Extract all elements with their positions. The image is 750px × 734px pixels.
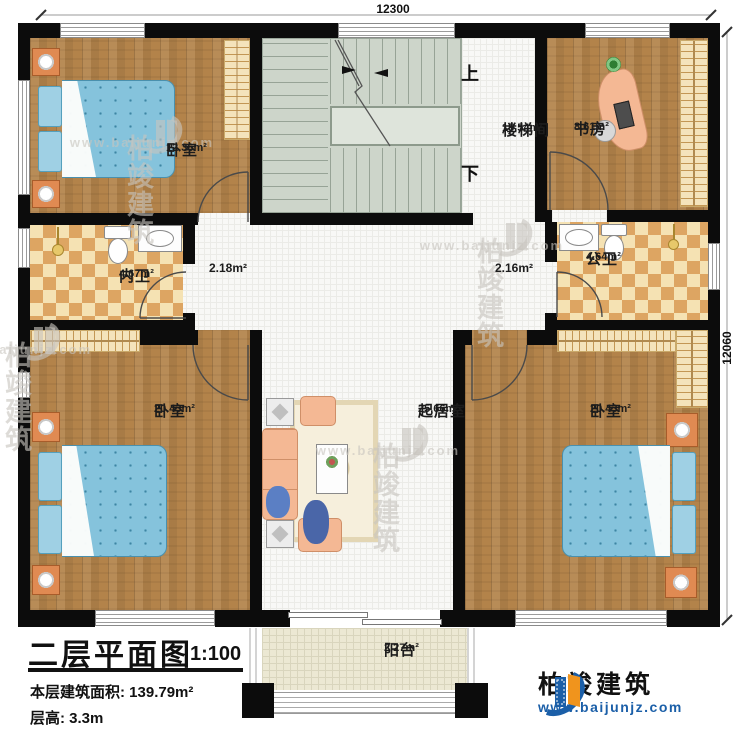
window [585,23,670,38]
sliding-door-panel [288,612,368,618]
closet-bedroom-tl [224,40,250,140]
area-label-hall-right: 2.16m² [495,261,533,275]
brand-logo-icon [538,665,588,721]
window [708,243,720,290]
stair-down-label: 下 [461,160,479,186]
window [95,610,215,626]
wall-segment [18,320,195,330]
pillow [672,452,696,501]
nightstand [665,567,697,598]
pillow [38,505,62,554]
wall-segment [545,320,720,330]
dimension-top: 12300 [376,2,409,16]
floor-plan: 12300 12060 上 下 卧室 12.36m² 楼梯间 15.54m² 书… [0,0,750,734]
nightstand [32,565,60,595]
wall-segment [545,222,557,262]
window [338,23,455,38]
window [18,372,30,398]
pillow [672,505,696,554]
window [18,228,30,268]
wall-segment [535,210,552,222]
shower-hose [57,227,59,245]
nightstand [32,412,60,442]
stair-flight-down [330,148,462,213]
balcony-column [242,683,274,718]
wall-segment [18,610,95,627]
shower-head [668,239,679,250]
area-label-hall-left: 2.18m² [209,261,247,275]
armchair [300,396,336,426]
wall-segment [527,330,557,345]
wall-segment [215,610,290,627]
window [60,23,145,38]
dimension-right: 12060 [720,331,734,364]
balcony-railing [272,692,457,714]
table-flowers [325,455,339,469]
pillow [38,131,62,172]
nightstand [32,180,60,208]
sink-basin [146,230,174,247]
stair-landing [330,106,460,146]
balcony-column [455,683,488,718]
wall-segment [250,330,262,610]
closet-bedroom-bl [30,330,140,352]
floor-height-line: 层高: 3.3m [30,707,103,728]
sliding-door-panel [362,619,442,625]
title-underline [28,668,243,672]
nightstand [666,413,698,447]
shower-hose [673,224,675,240]
person-figure [266,486,290,518]
wall-segment [183,225,195,264]
floor-area-line: 本层建筑面积: 139.79m² [30,681,193,702]
stair-flight-up [330,38,462,104]
stair-flight-west [262,38,328,213]
wall-segment [250,213,473,225]
person-figure [303,500,329,544]
wall-segment [453,330,465,610]
wall-segment [667,610,720,627]
wall-segment [18,213,198,225]
wall-segment [140,330,198,345]
sink-basin [565,229,593,246]
window [515,610,667,626]
closet-bedroom-br [557,330,676,352]
shower-head [52,244,64,256]
closet-bedroom-br-corner [676,330,708,408]
plan-scale: 1:100 [190,643,241,666]
coffee-table [316,444,348,494]
brand-logo: 柏竣建筑 www.baijunjz.com [538,664,743,722]
stair-up-label: 上 [461,60,479,86]
wall-segment [607,210,720,222]
plant [606,57,621,72]
wall-segment [250,38,262,225]
pillow [38,86,62,127]
pillow [38,452,62,501]
balcony-floor [262,628,467,690]
nightstand [32,48,60,76]
toilet-bowl [108,238,128,264]
wall-segment [440,610,515,627]
window [18,80,30,195]
closet-study [680,40,708,207]
